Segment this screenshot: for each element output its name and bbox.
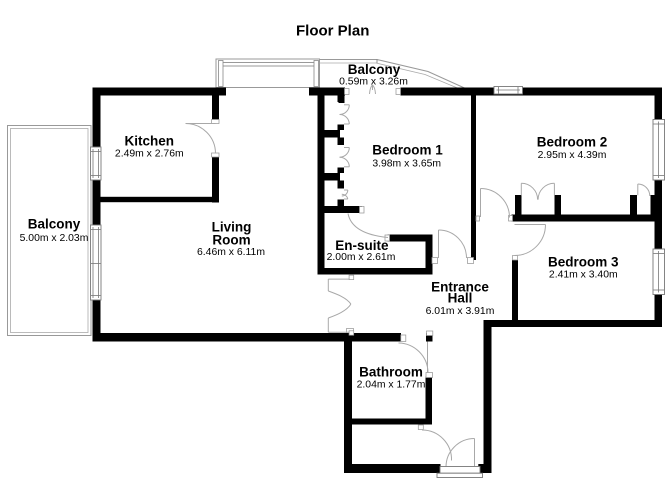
svg-text:0.59m x 3.26m: 0.59m x 3.26m	[339, 77, 408, 88]
svg-text:6.46m x 6.11m: 6.46m x 6.11m	[197, 247, 265, 258]
svg-text:2.00m x 2.61m: 2.00m x 2.61m	[327, 252, 396, 263]
svg-text:Bathroom: Bathroom	[359, 365, 423, 380]
svg-text:Hall: Hall	[448, 291, 473, 306]
svg-text:2.95m x 4.39m: 2.95m x 4.39m	[538, 150, 607, 161]
svg-text:2.41m x 3.40m: 2.41m x 3.40m	[549, 270, 618, 281]
svg-text:2.04m x 1.77m: 2.04m x 1.77m	[357, 380, 426, 391]
svg-text:2.49m x 2.76m: 2.49m x 2.76m	[115, 148, 184, 159]
svg-text:Room: Room	[212, 233, 250, 248]
svg-text:Balcony: Balcony	[348, 62, 401, 77]
svg-text:En-suite: En-suite	[335, 238, 389, 253]
svg-text:Bedroom 1: Bedroom 1	[372, 142, 443, 157]
svg-text:Bedroom 2: Bedroom 2	[537, 134, 608, 149]
svg-text:Floor Plan: Floor Plan	[296, 22, 369, 39]
svg-text:6.01m x 3.91m: 6.01m x 3.91m	[426, 306, 495, 317]
svg-text:Kitchen: Kitchen	[125, 133, 175, 148]
svg-text:Bedroom 3: Bedroom 3	[548, 255, 619, 270]
svg-text:3.98m x 3.65m: 3.98m x 3.65m	[372, 159, 441, 170]
svg-text:5.00m x 2.03m: 5.00m x 2.03m	[20, 233, 89, 244]
svg-text:Balcony: Balcony	[28, 217, 81, 232]
